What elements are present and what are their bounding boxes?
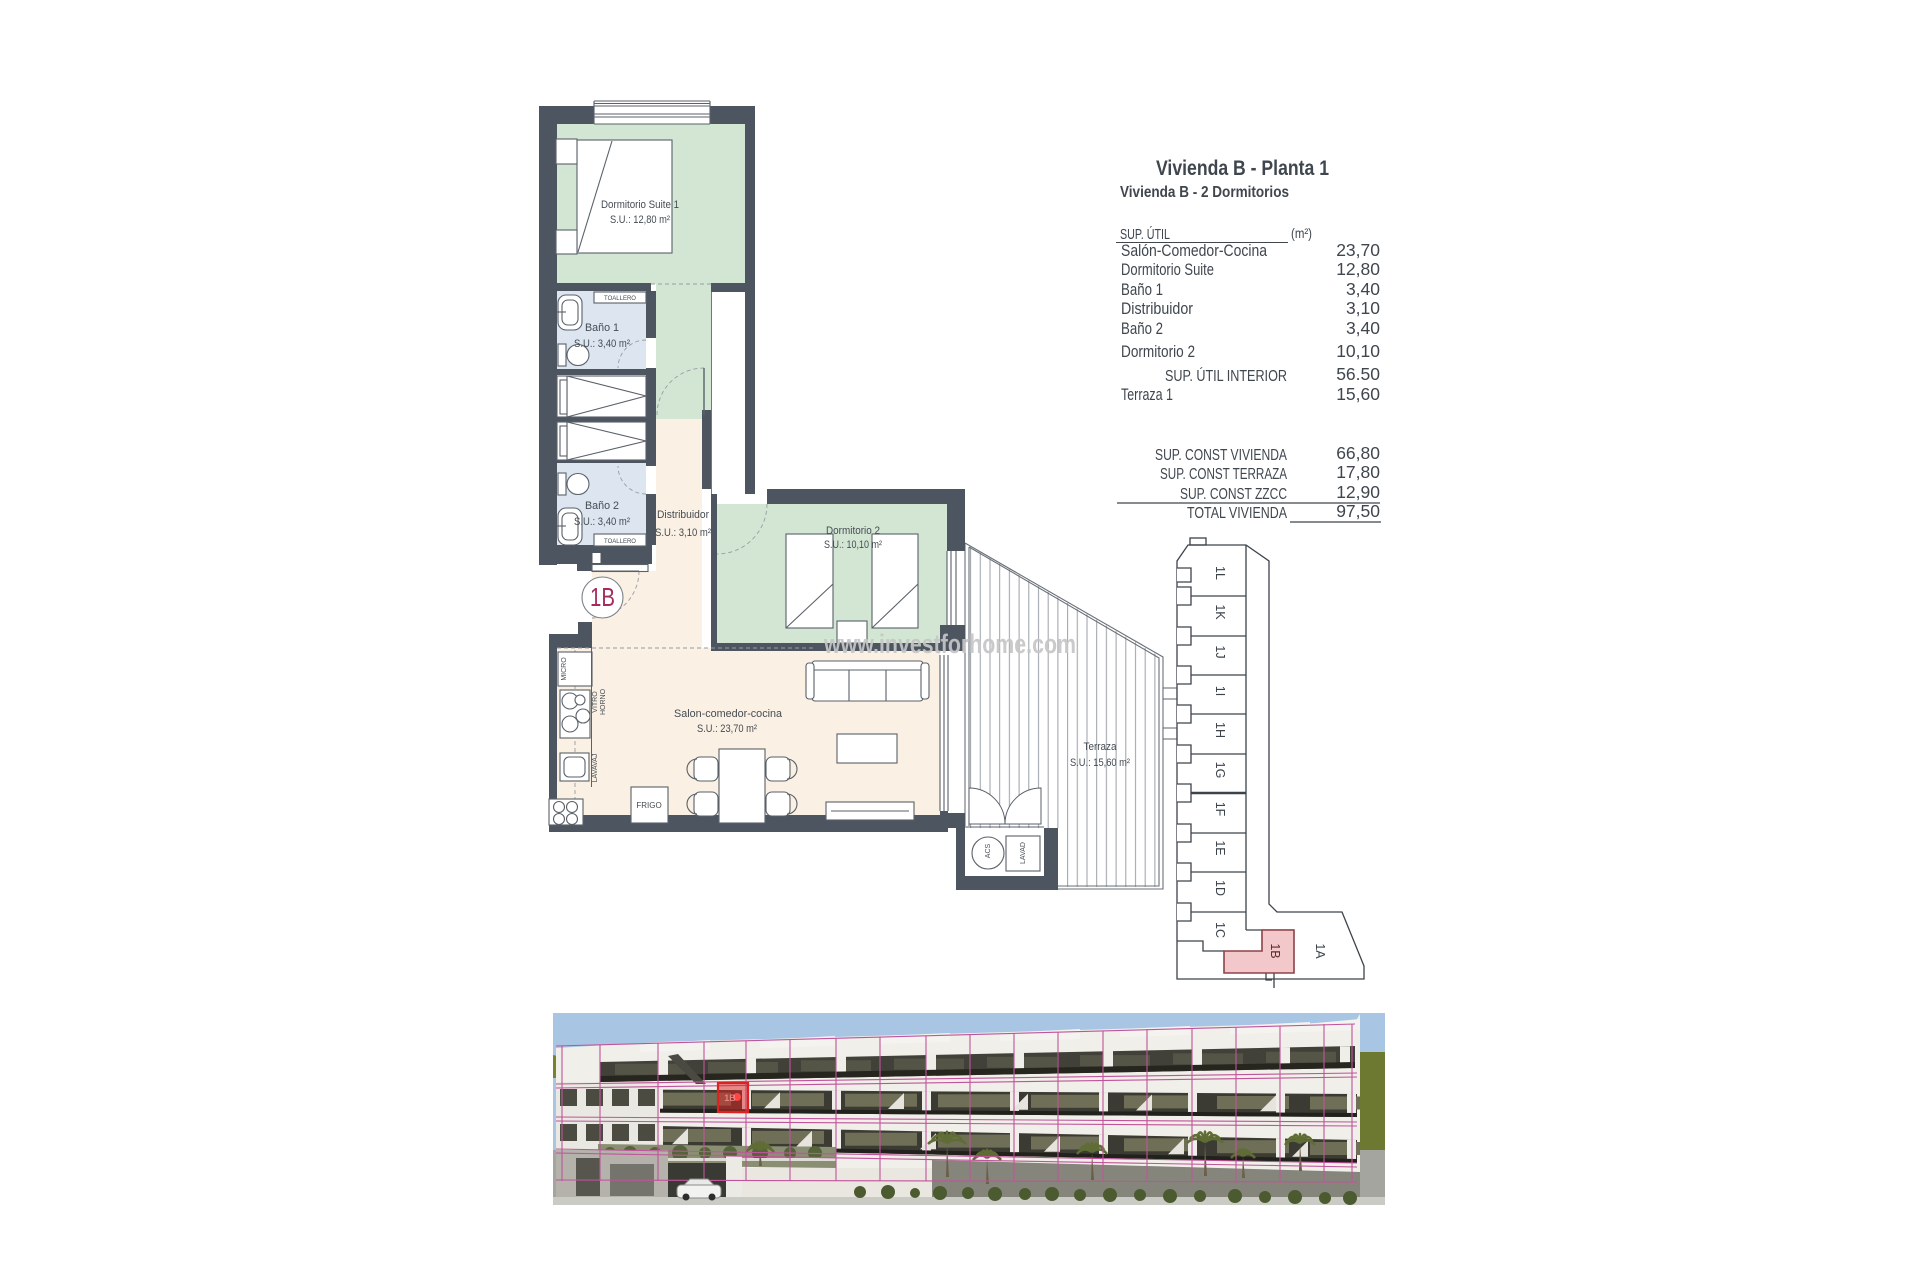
svg-text:LAVAVAJ: LAVAVAJ	[592, 754, 599, 783]
svg-text:SUP. ÚTIL INTERIOR: SUP. ÚTIL INTERIOR	[1165, 366, 1287, 385]
svg-text:FRIGO: FRIGO	[636, 801, 661, 810]
svg-text:Baño 1: Baño 1	[585, 322, 619, 334]
svg-text:Baño 2: Baño 2	[585, 500, 619, 512]
svg-text:SUP. CONST TERRAZA: SUP. CONST TERRAZA	[1160, 466, 1287, 483]
svg-text:66,80: 66,80	[1336, 443, 1380, 463]
svg-text:SUP. ÚTIL: SUP. ÚTIL	[1120, 226, 1170, 243]
svg-text:1C: 1C	[1213, 922, 1227, 938]
svg-text:10,10: 10,10	[1336, 341, 1380, 361]
svg-text:ACS: ACS	[985, 843, 992, 858]
svg-text:TOALLERO: TOALLERO	[604, 539, 636, 545]
svg-text:17,80: 17,80	[1336, 462, 1380, 482]
svg-text:1J: 1J	[1213, 645, 1227, 658]
svg-text:S.U.: 12,80 m²: S.U.: 12,80 m²	[610, 214, 670, 226]
svg-text:1D: 1D	[1213, 880, 1227, 896]
svg-text:www.investforhome.com: www.investforhome.com	[823, 629, 1076, 659]
svg-text:SUP. CONST ZZCC: SUP. CONST ZZCC	[1180, 486, 1287, 503]
svg-text:TOTAL VIVIENDA: TOTAL VIVIENDA	[1187, 505, 1287, 522]
svg-text:Distribuidor: Distribuidor	[1121, 300, 1193, 318]
svg-text:S.U.: 15,60 m²: S.U.: 15,60 m²	[1070, 757, 1130, 769]
svg-text:56.50: 56.50	[1336, 364, 1380, 384]
svg-text:1E: 1E	[1213, 840, 1227, 855]
svg-text:1H: 1H	[1213, 722, 1227, 738]
svg-text:SUP. CONST VIVIENDA: SUP. CONST VIVIENDA	[1155, 447, 1287, 464]
svg-text:MICRO: MICRO	[561, 657, 568, 681]
svg-text:12,80: 12,80	[1336, 259, 1380, 279]
svg-text:TOALLERO: TOALLERO	[604, 296, 636, 302]
svg-text:Salón-Comedor-Cocina: Salón-Comedor-Cocina	[1121, 242, 1268, 260]
svg-text:3,10: 3,10	[1346, 298, 1380, 318]
svg-text:1F: 1F	[1213, 802, 1227, 817]
svg-text:3,40: 3,40	[1346, 279, 1380, 299]
svg-text:Salon-comedor-cocina: Salon-comedor-cocina	[674, 708, 783, 720]
svg-text:1L: 1L	[1213, 566, 1227, 580]
svg-text:Vivienda B - Planta 1: Vivienda B - Planta 1	[1156, 157, 1329, 180]
svg-text:S.U.: 3,40 m²: S.U.: 3,40 m²	[574, 338, 630, 350]
svg-text:Dormitorio Suite 1: Dormitorio Suite 1	[601, 199, 679, 211]
svg-text:LAVAD: LAVAD	[1020, 842, 1027, 864]
svg-text:Terraza 1: Terraza 1	[1121, 386, 1173, 404]
svg-text:1K: 1K	[1213, 604, 1227, 620]
svg-text:Dormitorio Suite: Dormitorio Suite	[1121, 261, 1214, 279]
svg-text:S.U.: 3,40 m²: S.U.: 3,40 m²	[574, 516, 630, 528]
svg-text:HORNO: HORNO	[600, 688, 607, 715]
svg-text:1G: 1G	[1213, 762, 1227, 779]
svg-text:Baño 1: Baño 1	[1121, 281, 1163, 299]
svg-text:15,60: 15,60	[1336, 384, 1380, 404]
svg-text:Vivienda B - 2 Dormitorios: Vivienda B - 2 Dormitorios	[1120, 184, 1289, 201]
svg-text:Distribuidor: Distribuidor	[657, 509, 709, 521]
svg-text:23,70: 23,70	[1336, 240, 1380, 260]
svg-text:3,40: 3,40	[1346, 318, 1380, 338]
svg-text:S.U.: 10,10 m²: S.U.: 10,10 m²	[824, 539, 882, 551]
svg-text:VITRO: VITRO	[592, 691, 599, 713]
svg-text:1I: 1I	[1213, 686, 1227, 696]
svg-text:1B: 1B	[590, 582, 615, 612]
svg-text:Baño 2: Baño 2	[1121, 320, 1163, 338]
svg-text:Dormitorio 2: Dormitorio 2	[1121, 343, 1195, 361]
svg-text:12,90: 12,90	[1336, 482, 1380, 502]
svg-text:(m²): (m²)	[1291, 225, 1312, 241]
svg-text:S.U.: 3,10 m²: S.U.: 3,10 m²	[655, 527, 711, 539]
svg-text:Dormitorio 2: Dormitorio 2	[826, 525, 880, 537]
svg-text:97,50: 97,50	[1336, 501, 1380, 521]
svg-text:1A: 1A	[1313, 943, 1327, 959]
svg-text:S.U.: 23,70 m²: S.U.: 23,70 m²	[697, 723, 757, 735]
svg-text:1B: 1B	[1268, 943, 1282, 958]
svg-text:Terraza: Terraza	[1084, 741, 1118, 753]
svg-text:1B: 1B	[724, 1093, 736, 1103]
